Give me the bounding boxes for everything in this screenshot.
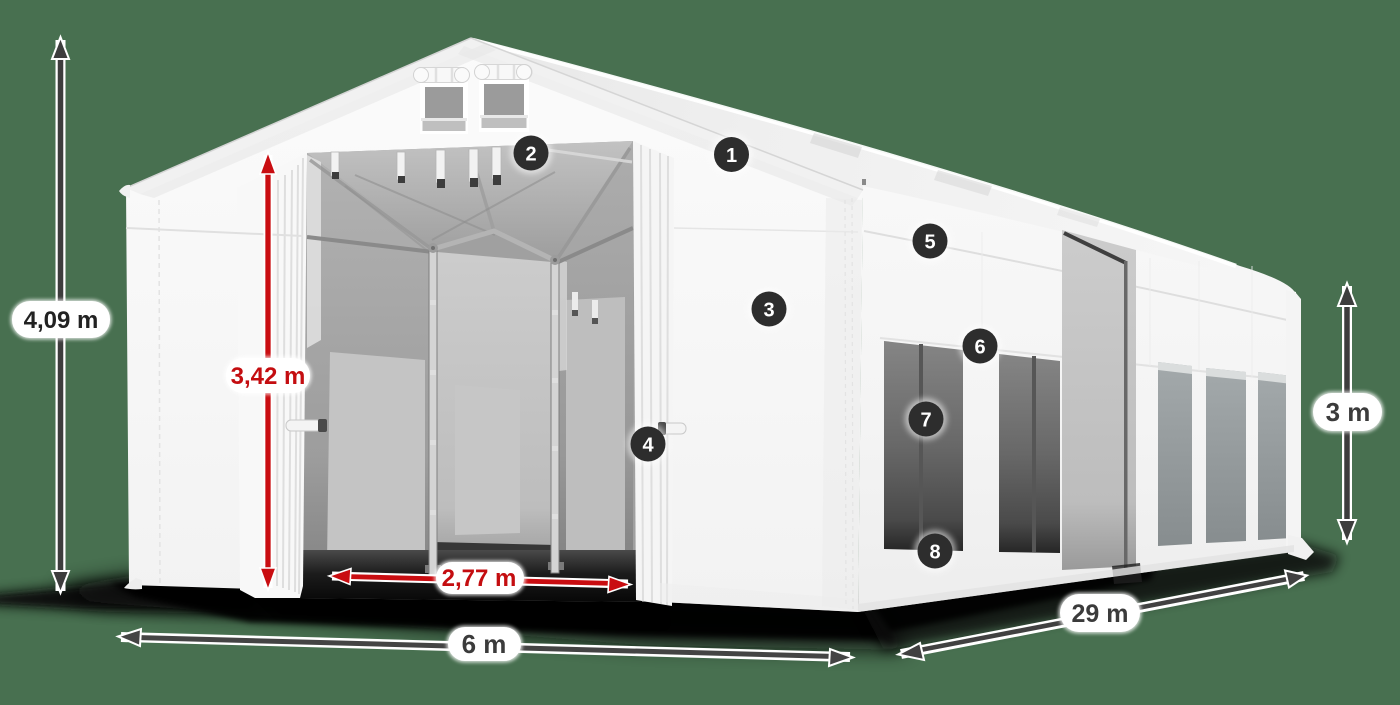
svg-text:29 m: 29 m bbox=[1072, 600, 1129, 628]
svg-text:2: 2 bbox=[525, 144, 536, 166]
svg-text:1: 1 bbox=[726, 145, 737, 167]
svg-text:6: 6 bbox=[974, 337, 985, 359]
svg-text:8: 8 bbox=[929, 542, 940, 564]
svg-text:4,09 m: 4,09 m bbox=[24, 307, 99, 334]
svg-text:3: 3 bbox=[763, 300, 774, 322]
svg-text:5: 5 bbox=[924, 232, 935, 254]
svg-text:4: 4 bbox=[642, 435, 654, 457]
svg-text:6 m: 6 m bbox=[462, 629, 507, 659]
svg-text:7: 7 bbox=[920, 410, 931, 432]
svg-text:3 m: 3 m bbox=[1326, 397, 1371, 427]
svg-text:2,77 m: 2,77 m bbox=[442, 565, 517, 592]
svg-text:3,42 m: 3,42 m bbox=[231, 363, 306, 390]
